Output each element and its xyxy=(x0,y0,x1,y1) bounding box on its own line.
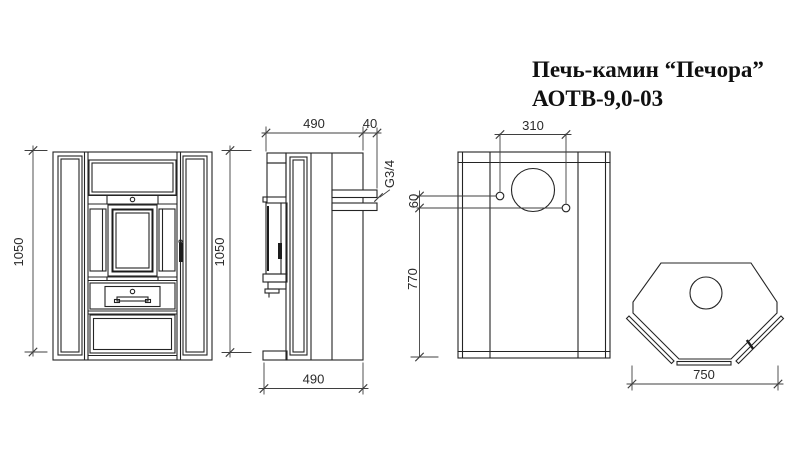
top-panel xyxy=(89,160,176,195)
back-view: 60 770 310 xyxy=(405,118,610,361)
front-view: 1050 xyxy=(11,146,212,360)
dim-side-depth-top-label: 490 xyxy=(303,116,325,131)
door-right-trim xyxy=(159,209,175,271)
rear-stub-left xyxy=(496,192,504,200)
side-air-knob xyxy=(263,197,267,202)
front-body-outline xyxy=(53,152,212,360)
side-ash-handle xyxy=(265,289,279,293)
dim-rear-stub-spacing: 310 xyxy=(495,118,571,203)
water-stub-lower xyxy=(332,203,377,211)
top-flue-circle xyxy=(690,277,722,309)
door-left-trim xyxy=(90,209,106,271)
top-left-trim xyxy=(627,316,675,364)
dim-rear-stub-height: 770 xyxy=(405,208,438,361)
flue-outlet xyxy=(512,169,555,212)
drawing-page: Печь-камин “Печора” АОТВ-9,0-03 xyxy=(0,0,800,476)
dim-side-height: 1050 xyxy=(212,146,251,357)
dim-rear-stub-spacing-label: 310 xyxy=(522,118,544,133)
door-handle xyxy=(179,243,183,262)
side-door-handle xyxy=(278,243,282,259)
bottom-panel xyxy=(90,315,175,353)
dim-side-depth-bottom-label: 490 xyxy=(303,372,325,387)
side-top-trim xyxy=(267,153,286,163)
dim-rear-stub-height-label: 770 xyxy=(405,268,420,290)
side-body-outline xyxy=(286,153,363,360)
water-stub-upper xyxy=(332,190,377,198)
title-line-1: Печь-камин “Печора” xyxy=(532,57,764,82)
top-view: 750 xyxy=(627,263,784,390)
side-foot xyxy=(263,351,287,360)
right-pilaster xyxy=(183,156,207,355)
thread-callout: G3/4 xyxy=(374,160,397,202)
side-fire-door xyxy=(266,203,287,274)
dim-front-height: 1050 xyxy=(11,146,47,356)
technical-drawing: Печь-камин “Печора” АОТВ-9,0-03 xyxy=(0,0,800,476)
title-block: Печь-камин “Печора” АОТВ-9,0-03 xyxy=(532,57,764,111)
fire-door xyxy=(108,205,157,276)
dim-front-height-label: 1050 xyxy=(11,238,26,267)
thread-size-label: G3/4 xyxy=(382,160,397,188)
side-view: 490 40 G3/4 1050 490 xyxy=(212,116,397,394)
dim-rear-stub-offset-label: 60 xyxy=(406,194,421,208)
rear-stub-right xyxy=(562,204,570,212)
back-body-outline xyxy=(458,152,610,358)
drawer-handle xyxy=(117,297,148,301)
dim-side-depth-bottom: 490 xyxy=(259,363,368,394)
dim-side-height-label: 1050 xyxy=(212,238,227,267)
top-right-trim xyxy=(736,316,784,364)
dim-rear-stub-offset: 60 xyxy=(406,191,562,212)
left-pilaster xyxy=(58,156,82,355)
fire-door-glass xyxy=(116,213,149,268)
dim-rear-stub-length-label: 40 xyxy=(363,116,377,131)
fire-door-frame xyxy=(113,210,153,272)
air-control-knob xyxy=(130,197,134,201)
top-front-trim xyxy=(677,362,731,366)
dim-top-width-label: 750 xyxy=(693,367,715,382)
title-line-2: АОТВ-9,0-03 xyxy=(532,86,663,111)
dim-top-width: 750 xyxy=(627,366,783,390)
side-door-sill xyxy=(263,274,287,282)
